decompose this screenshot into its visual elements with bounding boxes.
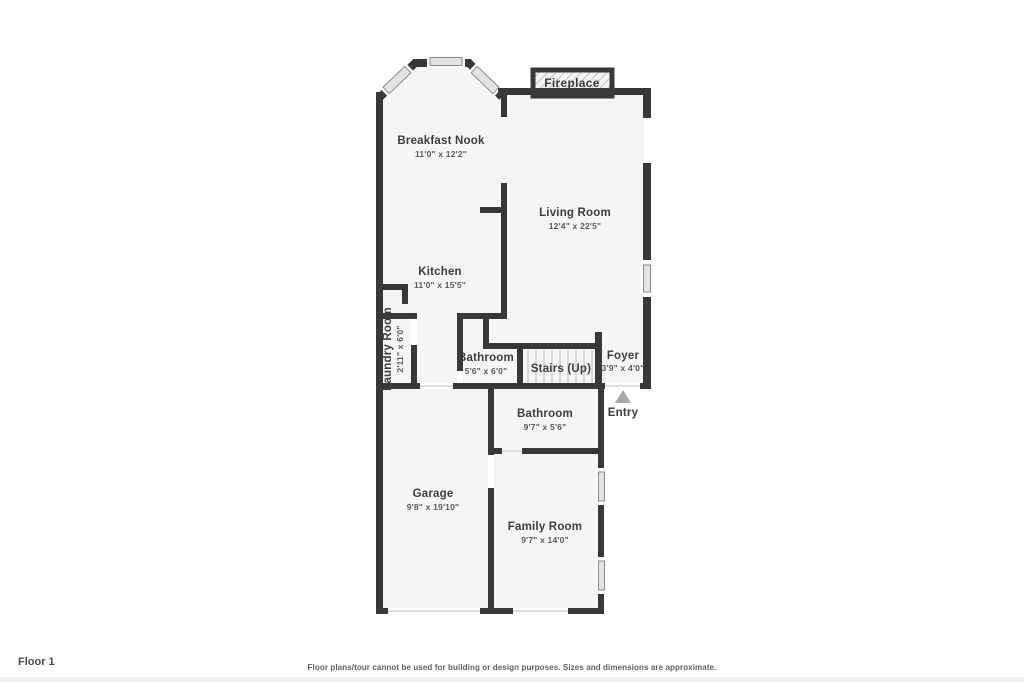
wall-segment <box>598 505 604 557</box>
door-gap <box>411 319 417 345</box>
room-dims-family-room: 9'7" x 14'0" <box>521 535 569 545</box>
room-label-bathroom-main: Bathroom <box>458 352 514 364</box>
window-icon <box>644 265 651 292</box>
wall-segment <box>480 608 513 614</box>
wall-segment <box>488 389 494 455</box>
wall-segment <box>411 345 417 389</box>
wall-segment <box>501 95 507 117</box>
fireplace-label: Fireplace <box>544 76 599 90</box>
room-dims-laundry-room: 2'11" x 6'0" <box>395 325 405 372</box>
entry-label: Entry <box>608 407 639 419</box>
disclaimer-text: Floor plans/tour cannot be used for buil… <box>0 663 1024 672</box>
room-dims-garage: 9'8" x 19'10" <box>407 502 460 512</box>
wall-segment <box>517 349 523 389</box>
wall-segment <box>480 207 501 213</box>
wall-segment <box>402 290 408 304</box>
room-dims-breakfast-nook: 11'0" x 12'2" <box>415 149 467 159</box>
room-label-laundry-room: Laundry Room <box>382 307 394 391</box>
floor-plan-canvas: Fireplace <box>0 0 1024 682</box>
wall-segment <box>595 332 602 389</box>
entry-arrow-icon <box>615 390 631 403</box>
wall-segment <box>488 448 502 454</box>
wall-segment <box>568 608 603 614</box>
wall-segment <box>457 313 507 319</box>
room-dims-bathroom-main: 5'6" x 6'0" <box>465 366 508 376</box>
room-label-foyer: Foyer <box>607 350 640 362</box>
room-dims-living-room: 12'4" x 22'5" <box>549 221 602 231</box>
window-icon <box>430 58 462 66</box>
wall-segment <box>483 343 602 349</box>
wall-segment <box>640 383 651 389</box>
wall-segment <box>643 297 651 389</box>
wall-segment <box>598 389 604 468</box>
bottom-bar <box>0 677 1024 682</box>
wall-segment <box>643 88 651 118</box>
room-label-garage: Garage <box>413 488 454 500</box>
room-label-breakfast-nook: Breakfast Nook <box>397 135 485 147</box>
wall-segment <box>643 163 651 260</box>
room-dims-foyer: 3'9" x 4'0" <box>602 363 645 373</box>
room-label-living-room: Living Room <box>539 207 611 219</box>
wall-segment <box>522 448 598 454</box>
window-icon <box>599 561 605 590</box>
wall-segment <box>376 608 388 614</box>
room-dims-kitchen: 11'0" x 15'5" <box>414 280 466 290</box>
room-dims-bathroom-lower: 9'7" x 5'6" <box>524 422 567 432</box>
stairs-label: Stairs (Up) <box>531 363 591 375</box>
door-gap <box>457 371 463 383</box>
floorplan-page: Fireplace <box>0 0 1024 682</box>
wall-segment <box>501 183 507 319</box>
window-icon <box>599 472 605 501</box>
room-label-kitchen: Kitchen <box>418 266 462 278</box>
wall-segment <box>376 284 408 290</box>
wall-segment <box>598 594 604 614</box>
wall-segment <box>498 88 650 95</box>
wall-segment <box>488 488 494 608</box>
wall-segment <box>453 383 605 389</box>
room-label-bathroom-lower: Bathroom <box>517 408 573 420</box>
door-gap <box>488 455 494 488</box>
room-label-family-room: Family Room <box>508 521 582 533</box>
